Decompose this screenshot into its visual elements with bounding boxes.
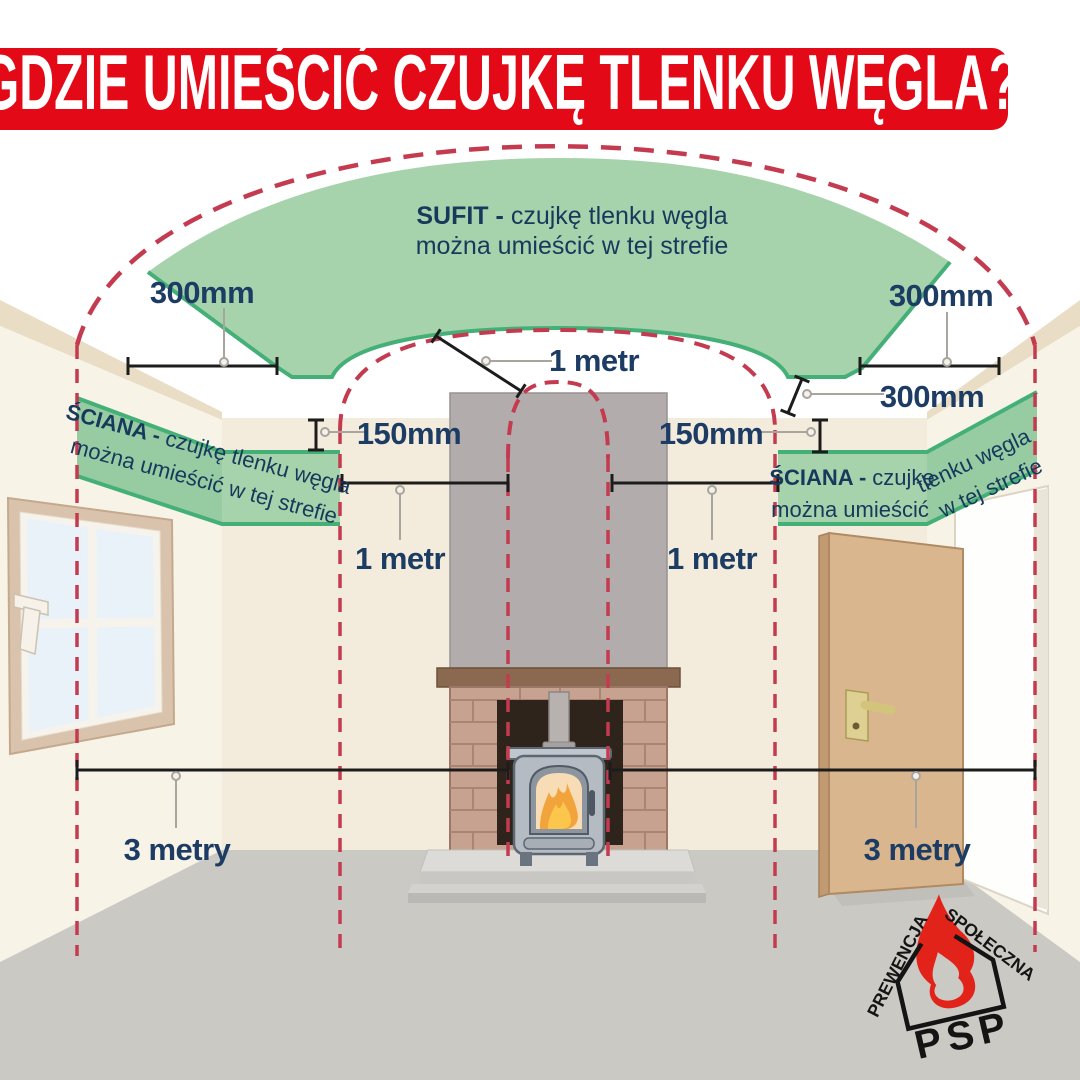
label-1metr-right: 1 metr bbox=[667, 541, 757, 576]
label-150mm-left: 150mm bbox=[357, 416, 461, 451]
door-handle-lever bbox=[865, 705, 891, 710]
hearth-step-front bbox=[408, 893, 706, 903]
page-title: GDZIE UMIEŚCIĆ CZUJKĘ TLENKU WĘGLA? bbox=[0, 38, 1018, 126]
window bbox=[8, 498, 174, 754]
stove-leg-right bbox=[586, 852, 598, 866]
chimney-breast bbox=[450, 393, 667, 668]
dim-300-left-dot bbox=[220, 358, 228, 366]
dim-300-right-dot bbox=[943, 358, 951, 366]
window-muntin-horizontal bbox=[28, 622, 154, 624]
dim-1m-top bbox=[432, 329, 526, 397]
ceiling-zone-label-line1: SUFIT -czujkę tlenku węgla bbox=[416, 202, 727, 230]
fireplace bbox=[408, 393, 706, 903]
label-1metr-left: 1 metr bbox=[355, 541, 445, 576]
infographic-poster: 300mm 300mm 300mm 150mm 150mm 1 metr 1 m… bbox=[0, 0, 1080, 1080]
dim-300-corner-dot bbox=[803, 390, 811, 398]
label-300mm-corner: 300mm bbox=[880, 379, 984, 414]
dim-150-right-dot bbox=[807, 428, 815, 436]
dim-1m-left-dot bbox=[396, 486, 404, 494]
dim-1m-top-dot bbox=[482, 357, 490, 365]
door-keyhole bbox=[853, 723, 860, 730]
label-300mm-left: 300mm bbox=[150, 275, 254, 310]
hearth-step-top bbox=[408, 884, 706, 893]
label-300mm-right: 300mm bbox=[889, 278, 993, 313]
label-3metry-left: 3 metry bbox=[124, 832, 232, 867]
title-banner: GDZIE UMIEŚCIĆ CZUJKĘ TLENKU WĘGLA? bbox=[0, 38, 1018, 130]
door-jamb bbox=[1034, 488, 1048, 910]
hearth-front bbox=[420, 872, 695, 884]
stove-ash-drawer bbox=[524, 838, 594, 849]
dim-3m-left-dot bbox=[172, 772, 180, 780]
dim-3m-right-dot bbox=[912, 772, 920, 780]
stove-leg-left bbox=[520, 852, 532, 866]
label-150mm-right: 150mm bbox=[659, 416, 763, 451]
ceiling-zone-label-line2: można umieścić w tej strefie bbox=[416, 232, 729, 260]
scene: 300mm 300mm 300mm 150mm 150mm 1 metr 1 m… bbox=[0, 0, 1080, 1080]
door-handle-plate bbox=[846, 690, 868, 741]
dim-1m-right-dot bbox=[708, 486, 716, 494]
dim-300-left bbox=[128, 357, 277, 375]
door-edge bbox=[819, 533, 829, 897]
wall-right-label-line1: ŚCIANA -czujkę bbox=[769, 465, 934, 490]
mantel-beam bbox=[437, 668, 680, 687]
stove-door-handle bbox=[589, 790, 595, 816]
dim-300-right bbox=[860, 357, 999, 375]
dim-150-left-dot bbox=[321, 428, 329, 436]
label-1metr-top: 1 metr bbox=[549, 343, 639, 378]
label-3metry-right: 3 metry bbox=[864, 832, 972, 867]
stove-flue-pipe bbox=[549, 692, 569, 748]
wall-right-label-line2: można umieścić bbox=[771, 497, 929, 522]
